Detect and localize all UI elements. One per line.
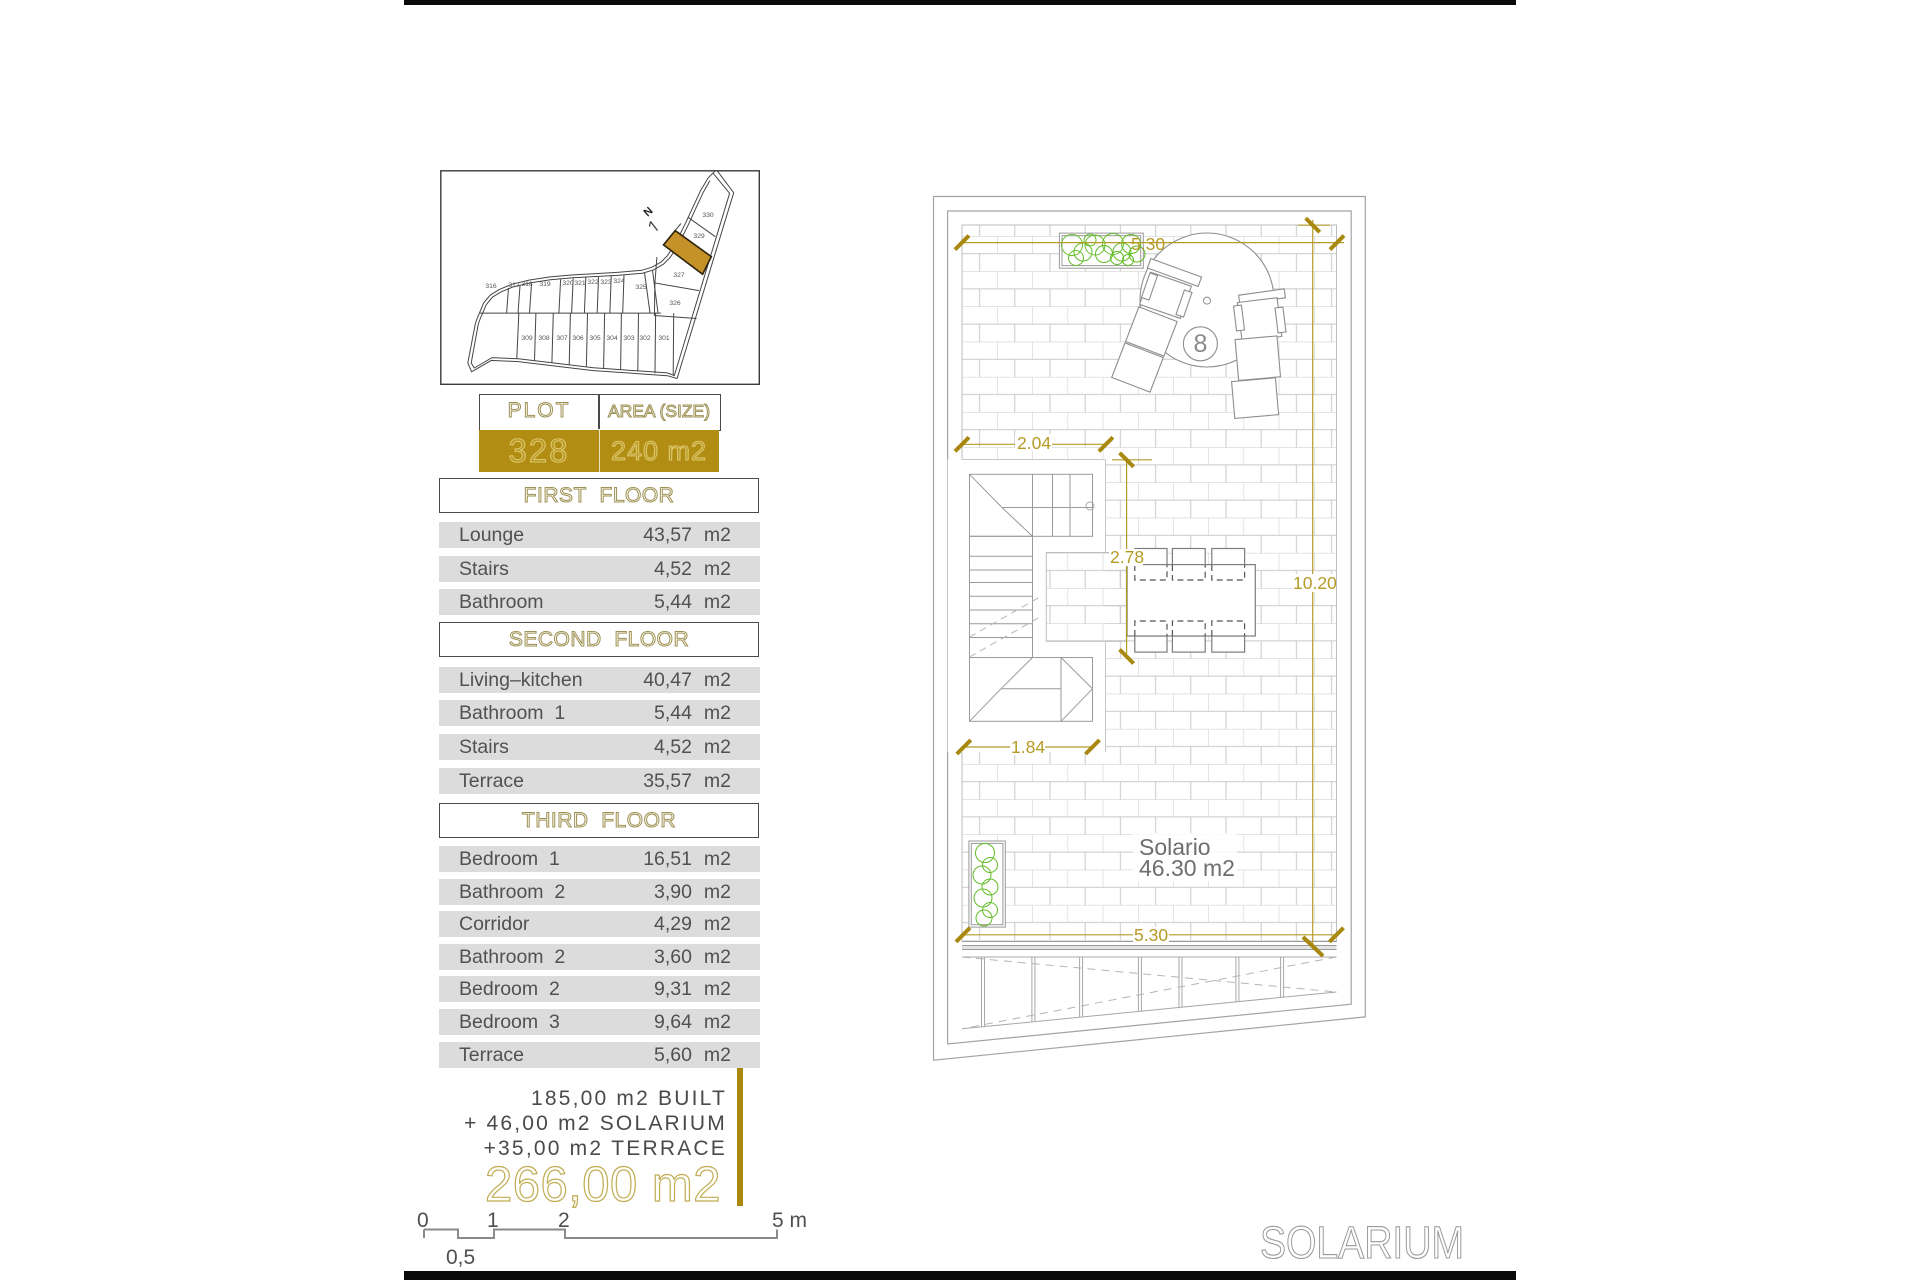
svg-text:326: 326: [669, 300, 681, 307]
svg-text:302: 302: [639, 335, 651, 342]
svg-text:316: 316: [485, 283, 497, 290]
svg-text:0,5: 0,5: [446, 1246, 475, 1269]
svg-text:330: 330: [702, 212, 714, 219]
svg-text:329: 329: [693, 233, 705, 240]
svg-text:10.20: 10.20: [1293, 573, 1337, 593]
svg-text:320: 320: [562, 280, 574, 287]
svg-text:305: 305: [589, 335, 601, 342]
svg-text:SOLARIUM: SOLARIUM: [1260, 1217, 1464, 1268]
svg-text:301: 301: [658, 335, 670, 342]
svg-text:1: 1: [487, 1209, 499, 1232]
svg-text:8: 8: [1193, 330, 1207, 358]
svg-text:5.30: 5.30: [1134, 925, 1168, 945]
svg-text:2.78: 2.78: [1110, 547, 1144, 567]
svg-text:308: 308: [538, 335, 550, 342]
svg-text:0: 0: [417, 1209, 429, 1232]
svg-text:327: 327: [673, 272, 685, 279]
svg-text:321: 321: [574, 280, 586, 287]
svg-text:5.30: 5.30: [1131, 234, 1165, 254]
svg-text:304: 304: [606, 335, 618, 342]
svg-text:323: 323: [600, 279, 612, 286]
svg-text:309: 309: [521, 335, 533, 342]
svg-text:1.84: 1.84: [1011, 737, 1045, 757]
svg-text:306: 306: [572, 335, 584, 342]
svg-text:2: 2: [558, 1209, 570, 1232]
svg-text:2.04: 2.04: [1017, 433, 1051, 453]
svg-text:322: 322: [587, 279, 599, 286]
svg-text:324: 324: [613, 278, 625, 285]
svg-text:307: 307: [556, 335, 568, 342]
svg-text:317: 317: [508, 282, 520, 289]
svg-text:303: 303: [623, 335, 635, 342]
svg-text:318: 318: [521, 281, 533, 288]
svg-text:325: 325: [635, 284, 647, 291]
svg-text:319: 319: [539, 281, 551, 288]
svg-text:5 m: 5 m: [772, 1209, 807, 1232]
svg-text:46.30 m2: 46.30 m2: [1139, 855, 1235, 881]
